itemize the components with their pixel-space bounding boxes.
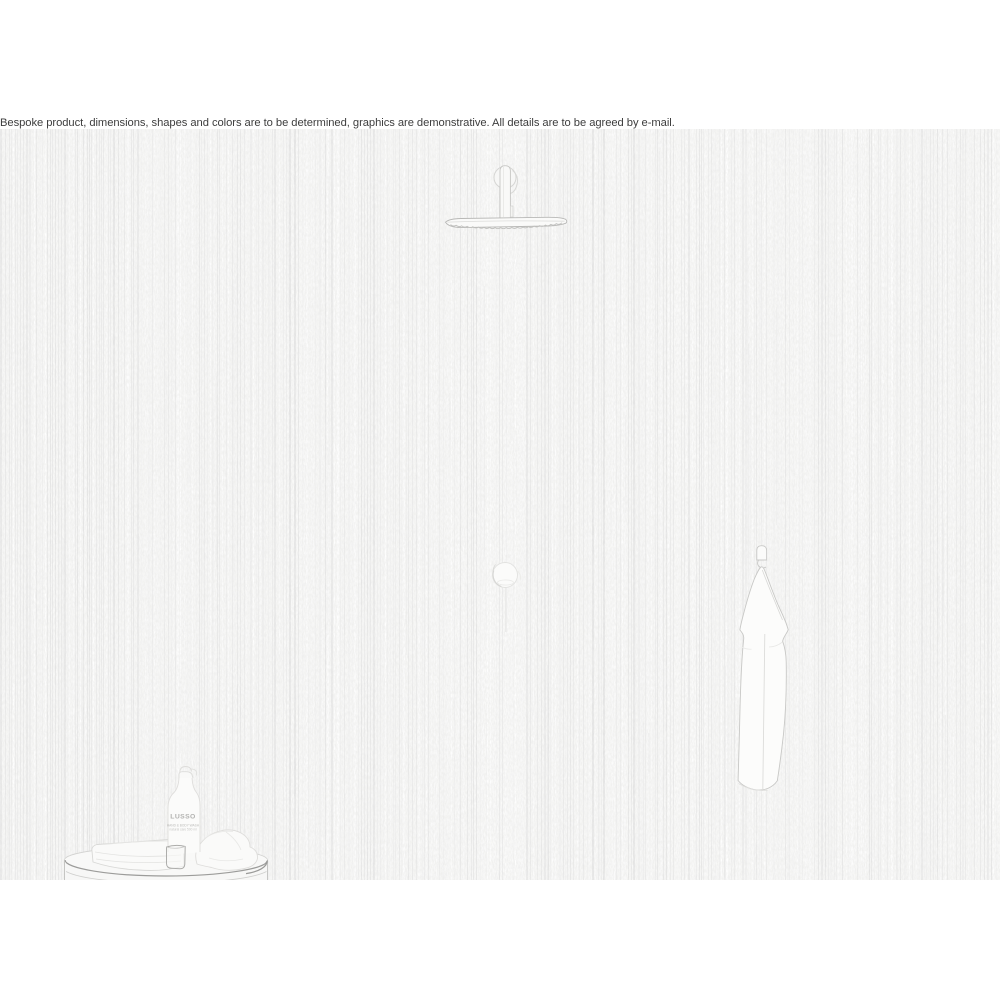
svg-text:LUSSO: LUSSO: [170, 814, 195, 821]
svg-text:natural care 500 ml: natural care 500 ml: [169, 828, 197, 832]
